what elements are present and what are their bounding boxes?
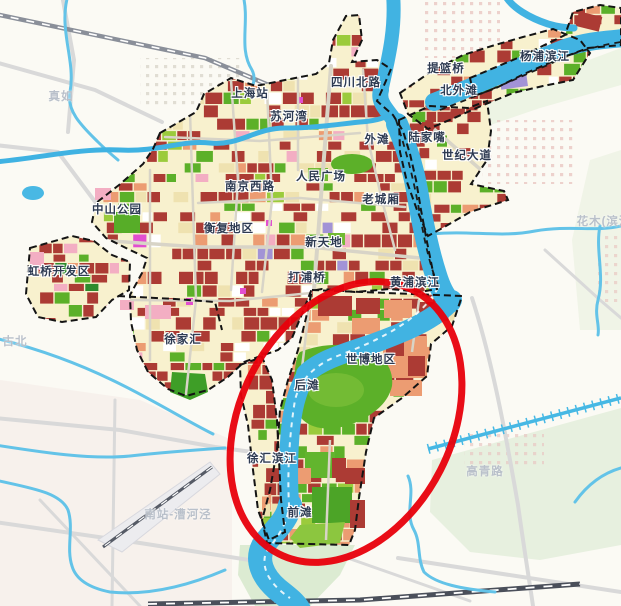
planning-map[interactable]: 上海站四川北路提篮桥北外滩杨浦滨江苏河湾外滩陆家嘴世纪大道南京西路人民广场老城厢… xyxy=(0,0,621,606)
dotted-area-e xyxy=(482,120,574,184)
map-canvas xyxy=(0,0,621,606)
pond-west xyxy=(22,186,44,200)
